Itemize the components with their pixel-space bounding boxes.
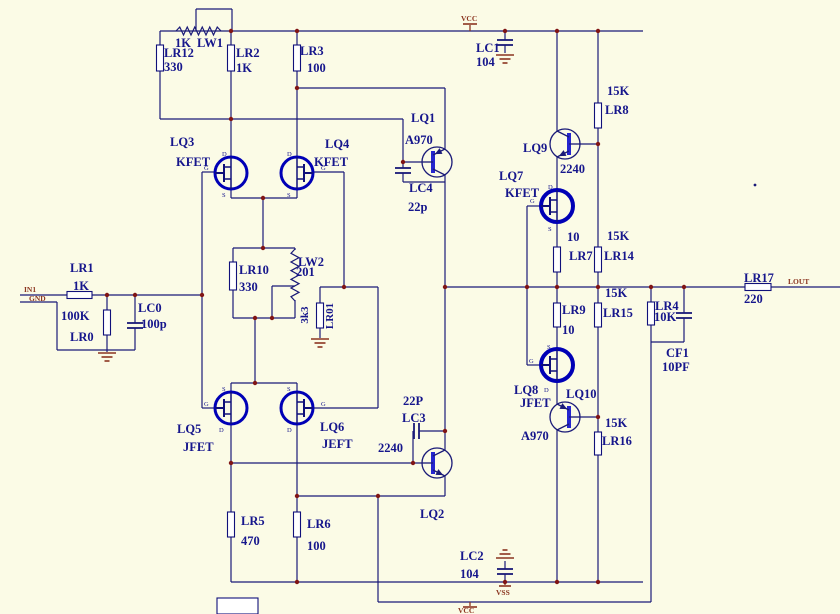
label-KFET: KFET [314,155,349,169]
power-port-vcc: VCC [461,14,477,31]
label-2240: 2240 [378,441,403,455]
junction-dot [229,29,233,33]
junction-dot [503,29,507,33]
label-104: 104 [476,55,496,69]
label-LR3: LR3 [300,44,324,58]
labels: 1KLW1LR12330LR21KLR3100LC110415KLR8LQ922… [61,36,774,581]
resistor-LR12[interactable] [157,45,164,71]
ground-icon [496,550,514,558]
transistor-LQ8[interactable] [541,349,573,381]
capacitor-LC2[interactable] [497,569,513,574]
label-22P: 22P [403,394,424,408]
label-LQ10: LQ10 [566,387,597,401]
label-104: 104 [460,567,480,581]
junction-dot [555,29,559,33]
port-label-lout: LOUT [788,277,809,286]
junction-dot [229,461,233,465]
junction-dot [555,285,559,289]
label-100: 100 [307,539,326,553]
label-LQ1: LQ1 [411,111,435,125]
transistor-LQ1[interactable] [422,147,452,177]
label-LR5: LR5 [241,514,265,528]
label-S: S [222,192,226,199]
junction-dot [133,293,137,297]
label-LR1: LR1 [70,261,94,275]
label-LQ3: LQ3 [170,135,194,149]
label-201: 201 [296,265,315,279]
label-15K: 15K [605,416,628,430]
transistor-LQ6[interactable] [281,392,313,424]
transistor-LQ4[interactable] [281,157,313,189]
schematic-page: VCCVCCVSSIN1GNDLOUT1KLW1LR12330LR21KLR31… [0,0,840,614]
junction-dot [682,285,686,289]
junction-dot [555,580,559,584]
junction-dot [596,580,600,584]
transistor-LQ7[interactable] [541,190,573,222]
ground-icon [98,353,116,361]
label-LQ4: LQ4 [325,137,350,151]
label-10: 10 [567,230,580,244]
junction-dot [105,293,109,297]
junction-dot [596,142,600,146]
label-D: D [548,184,553,191]
label-G: G [204,165,209,172]
junction-dot [200,293,204,297]
port-label-in1: IN1 [24,285,36,294]
label-10: 10 [562,323,575,337]
label-3k3: 3k3 [299,306,311,324]
junction-dot [376,494,380,498]
label-JEFT: JEFT [322,437,353,451]
port-label-vcc: VCC [458,606,474,614]
label-D: D [287,427,292,434]
label-LR01: LR01 [324,303,336,329]
label-LR10: LR10 [239,263,269,277]
junction-dot [401,160,405,164]
label-330: 330 [164,60,183,74]
label-CF1: CF1 [666,346,689,360]
label-LQ5: LQ5 [177,422,201,436]
label-100p: 100p [141,317,167,331]
label-S: S [287,192,291,199]
label-15K: 15K [607,229,630,243]
label-D: D [222,151,227,158]
label-A970: A970 [521,429,549,443]
junction-dot [649,285,653,289]
capacitor-LC4[interactable] [395,168,411,173]
transistor-LQ2[interactable] [422,448,452,478]
junction-dot [295,29,299,33]
power-port-gnd: GND [29,294,46,303]
resistor-LR10[interactable] [230,262,237,290]
resistor-LR0[interactable] [104,310,111,335]
label-JFET: JFET [520,396,551,410]
label-LW1: LW1 [197,36,223,50]
label-LQ6: LQ6 [320,420,344,434]
power-port-vss: VSS [496,582,511,597]
junction-dot [596,285,600,289]
label-JFET: JFET [183,440,214,454]
label-S: S [547,344,551,351]
label-LR6: LR6 [307,517,331,531]
transistor-LQ9[interactable] [550,129,580,159]
label-G: G [204,401,209,408]
capacitor-CF1[interactable] [676,313,692,318]
junction-dot [443,285,447,289]
port-label-vcc: VCC [461,14,477,23]
junction-dot [503,580,507,584]
resistor-LR6[interactable] [294,512,301,537]
junction-dot [253,381,257,385]
label-LQ8: LQ8 [514,383,538,397]
label-LR8: LR8 [605,103,629,117]
label-470: 470 [241,534,260,548]
junction-dot [295,86,299,90]
stray-dot [754,184,757,187]
junction-dot [295,494,299,498]
label-100K: 100K [61,309,90,323]
label-LR14: LR14 [604,249,635,263]
label-D: D [287,151,292,158]
resistor-LR01[interactable] [317,303,324,328]
junction-dot [270,316,274,320]
junction-dot [295,580,299,584]
resistor-LR16[interactable] [595,432,602,455]
label-LC0: LC0 [138,301,162,315]
label-LR17: LR17 [744,271,774,285]
power-port-vcc: VCC [458,602,477,614]
junction-dot [229,117,233,121]
label-15K: 15K [605,286,628,300]
label-S: S [222,386,226,393]
label-LR9: LR9 [562,303,586,317]
label-LQ7: LQ7 [499,169,523,183]
junction-dot [525,285,529,289]
label-22p: 22p [408,200,428,214]
power-port-lout: LOUT [788,277,809,286]
junction-dot [261,246,265,250]
transistor-LQ3[interactable] [215,157,247,189]
label-15K: 15K [607,84,630,98]
label-G: G [530,198,535,205]
circuit-schematic[interactable]: VCCVCCVSSIN1GNDLOUT1KLW1LR12330LR21KLR31… [0,0,840,614]
label-S: S [548,226,552,233]
transistor-LQ10[interactable] [550,402,580,432]
label-G: G [529,358,534,365]
label-10PF: 10PF [662,360,690,374]
resistor-LR5[interactable] [228,512,235,537]
resistor-LR2[interactable] [228,45,235,71]
label-D: D [544,387,549,394]
resistor-LR7[interactable] [554,247,561,272]
capacitor-LC3[interactable] [414,423,419,439]
label-LR15: LR15 [603,306,633,320]
label-1K: 1K [236,61,252,75]
cutoff-component-box[interactable] [217,598,258,614]
label-G: G [321,165,326,172]
junction-dot [261,196,265,200]
label-G: G [321,401,326,408]
label-LQ9: LQ9 [523,141,547,155]
junction-dot [411,461,415,465]
label-LQ2: LQ2 [420,507,444,521]
resistor-LR8[interactable] [595,103,602,128]
label-LR12: LR12 [164,46,194,60]
label-S: S [287,386,291,393]
junction-dot [596,415,600,419]
label-LC3: LC3 [402,411,426,425]
label-LR0: LR0 [70,330,94,344]
label-LR7: LR7 [569,249,593,263]
label-2240: 2240 [560,162,585,176]
label-100: 100 [307,61,326,75]
port-label-vss: VSS [496,588,510,597]
ground-icon [496,55,514,63]
junction-dot [443,429,447,433]
label-10K: 10K [654,310,677,324]
transistor-LQ5[interactable] [215,392,247,424]
junction-dot [253,316,257,320]
resistor-LR15[interactable] [595,303,602,327]
label-A970: A970 [405,133,433,147]
label-LC2: LC2 [460,549,484,563]
label-LR16: LR16 [602,434,632,448]
junction-dot [596,29,600,33]
label-330: 330 [239,280,258,294]
ground-icon [311,339,329,347]
label-220: 220 [744,292,763,306]
label-LR2: LR2 [236,46,260,60]
label-LC1: LC1 [476,41,500,55]
junction-dot [342,285,346,289]
resistor-LR9[interactable] [554,303,561,327]
port-label-gnd: GND [29,294,46,303]
power-port-in1: IN1 [24,285,36,294]
resistor-LR14[interactable] [595,247,602,272]
label-1K: 1K [73,279,89,293]
label-LC4: LC4 [409,181,433,195]
label-D: D [219,427,224,434]
